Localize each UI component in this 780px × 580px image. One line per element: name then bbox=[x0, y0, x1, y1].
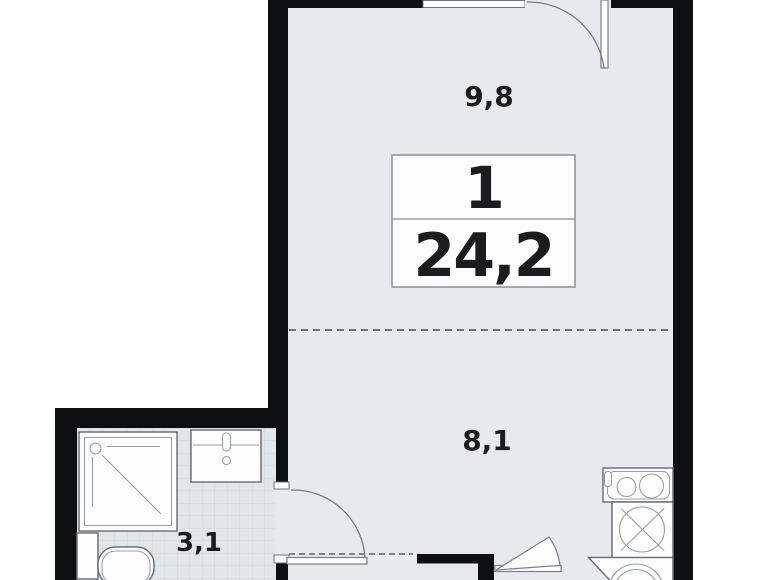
bathroom-area-label: 3,1 bbox=[176, 528, 222, 558]
toilet-cistern bbox=[77, 533, 98, 579]
unit-total-area: 24,2 bbox=[413, 221, 553, 291]
bathroom-door-jamb-top bbox=[274, 482, 289, 489]
bathroom-door-leaf bbox=[287, 558, 367, 565]
bathroom-door-opening bbox=[275, 489, 288, 555]
kitchen-faucet-icon bbox=[605, 472, 612, 487]
bathroom-sink-drain bbox=[223, 457, 231, 465]
unit-rooms-count: 1 bbox=[464, 154, 502, 222]
kitchen-sink-unit bbox=[603, 468, 673, 502]
entry-wall-stub bbox=[478, 554, 494, 580]
bathroom-faucet-icon bbox=[223, 433, 231, 451]
balcony-door-opening bbox=[525, 0, 611, 8]
floor-plan: 1 24,2 9,8 8,1 3,1 bbox=[0, 0, 780, 580]
living-area-label: 9,8 bbox=[464, 80, 514, 113]
floor-plan-canvas: 1 24,2 9,8 8,1 3,1 bbox=[0, 0, 780, 580]
window bbox=[423, 1, 525, 8]
kitchen-area-label: 8,1 bbox=[462, 424, 512, 457]
toilet-bowl bbox=[98, 547, 154, 580]
